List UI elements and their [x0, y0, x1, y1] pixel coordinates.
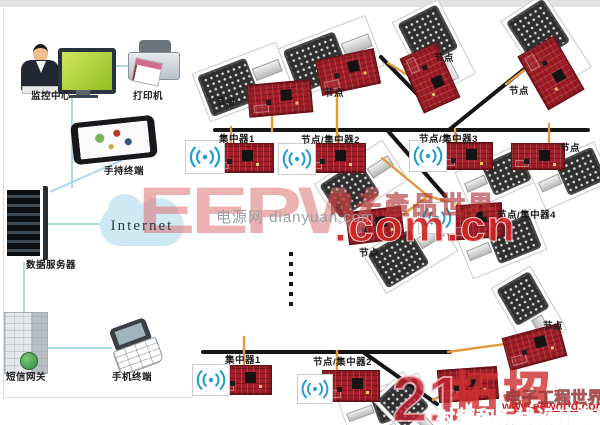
node-label-d: 节点	[509, 83, 529, 97]
handheld-terminal-label: 手持终端	[104, 163, 144, 177]
globe-icon	[20, 352, 38, 370]
wifi-icon	[281, 146, 313, 172]
row2-node-concentrator2-label: 节点/集中器2	[313, 354, 372, 368]
wireless-icon-box	[185, 140, 225, 174]
row2-branch-pcb	[437, 366, 499, 403]
node-label-h: 节点	[543, 318, 563, 332]
node-pcb-a	[247, 79, 314, 117]
node-label-c: 节点	[434, 50, 454, 64]
right-node-pcb	[511, 143, 565, 170]
internet-label: Internet	[111, 218, 174, 235]
internet-cloud: Internet	[100, 206, 184, 246]
node-label-f: 节点	[359, 245, 379, 259]
monitor-base	[70, 95, 98, 98]
ellipsis-dots	[289, 252, 293, 306]
monitor-center-label: 监控中心	[31, 88, 71, 102]
wireless-icon-box	[418, 202, 456, 234]
node-concentrator2-label: 节点/集中器2	[301, 132, 360, 146]
operator-shirt	[36, 61, 46, 73]
tablet-screen	[78, 120, 151, 159]
node-label-right: 节点	[560, 140, 580, 154]
wifi-icon	[188, 143, 222, 171]
data-server-label: 数据服务器	[26, 257, 76, 271]
row2-concentrator1-label: 集中器1	[225, 352, 261, 366]
handheld-terminal	[70, 115, 158, 166]
wireless-icon-box	[297, 374, 333, 404]
wifi-icon	[195, 367, 227, 393]
node-label-b: 节点	[324, 85, 344, 99]
concentrator1-label: 集中器1	[219, 131, 255, 145]
data-server-rack	[4, 186, 48, 260]
wireless-icon-box	[278, 143, 316, 175]
node-label-a: 节点	[216, 94, 236, 108]
network-architecture-diagram: 节点 节点 节点 节点 节点 节点 节点 集中器1 节点/集中器2 节点/集中器…	[0, 0, 600, 425]
wifi-icon	[300, 377, 330, 401]
mobile-terminal-label: 手机终端	[112, 369, 152, 383]
wifi-icon	[421, 205, 453, 231]
node-concentrator3-label: 节点/集中器3	[419, 131, 478, 145]
wireless-icon-box	[192, 364, 230, 396]
node-f-pcb	[345, 206, 405, 246]
node-concentrator4-label: 节点/集中器4	[497, 207, 556, 221]
wifi-icon	[412, 143, 444, 169]
printer-label: 打印机	[133, 88, 163, 102]
sms-gateway-label: 短信网关	[6, 369, 46, 383]
